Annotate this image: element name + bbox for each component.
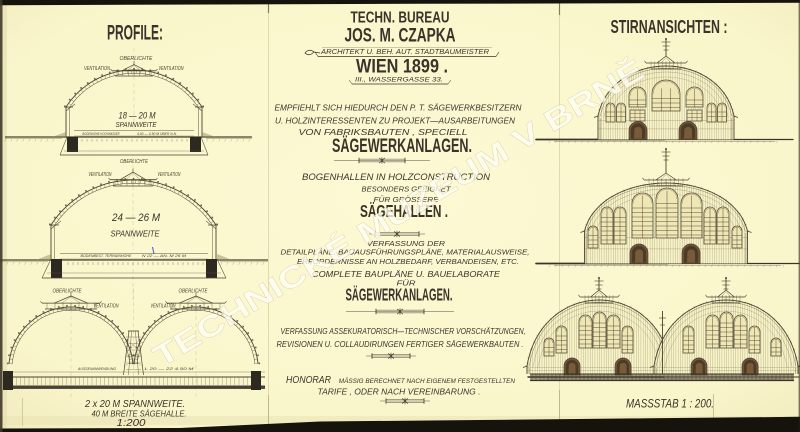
svg-text:VENTILATION: VENTILATION — [89, 172, 112, 178]
svg-text:SPANNWEITE: SPANNWEITE — [111, 229, 160, 239]
svg-text:VENTILATION: VENTILATION — [158, 172, 181, 178]
svg-text:WIEN 1899 .: WIEN 1899 . — [356, 57, 448, 78]
svg-text:VENTILATION: VENTILATION — [94, 304, 119, 310]
svg-text:VERFASSUNG ASSEKURATORISCH—T: VERFASSUNG ASSEKURATORISCH—TECHNISCHER V… — [281, 327, 526, 336]
svg-text:OBERLICHTE: OBERLICHTE — [120, 159, 149, 165]
svg-text:SPANNWEITE: SPANNWEITE — [116, 122, 157, 129]
svg-text:REVISIONEN U. COLLAUDIRUNGEN: REVISIONEN U. COLLAUDIRUNGEN FERTIGER SÄ… — [277, 340, 524, 349]
svg-text:PROFILE:: PROFILE: — [107, 22, 163, 45]
svg-text:MASSSTAB 1 : 200.: MASSSTAB 1 : 200. — [626, 397, 714, 411]
svg-text:18 — 20 M: 18 — 20 M — [119, 111, 156, 122]
svg-text:ARCHITEKT U. BEH. AUT. STADT: ARCHITEKT U. BEH. AUT. STADTBAUMEISTER — [320, 49, 489, 56]
svg-text:SÄGEWERKANLAGEN.: SÄGEWERKANLAGEN. — [332, 136, 472, 157]
svg-text:OBERLICHTE: OBERLICHTE — [53, 289, 83, 295]
svg-text:N 22 — AN. M 26 M: N 22 — AN. M 26 M — [142, 253, 187, 258]
svg-text:III., WASSERGASSE 33.: III., WASSERGASSE 33. — [355, 77, 443, 84]
svg-text:VENTILATION: VENTILATION — [151, 304, 176, 310]
svg-text:JOS. M. CZAPKA: JOS. M. CZAPKA — [345, 25, 456, 47]
svg-text:BODENHÖHE HOCHWASSER: BODENHÖHE HOCHWASSER — [83, 131, 120, 136]
svg-text:1:200: 1:200 — [117, 418, 147, 429]
svg-text:U. HOLZINTERESSENTEN ZU P: U. HOLZINTERESSENTEN ZU PROJEKT—AUSARBEI… — [275, 116, 516, 126]
svg-text:OBERLICHTE: OBERLICHTE — [120, 56, 153, 62]
svg-text:OBERLICHTE: OBERLICHTE — [179, 289, 209, 295]
svg-text:VENTILATION: VENTILATION — [84, 66, 110, 72]
svg-text:STIRNANSICHTEN :: STIRNANSICHTEN : — [611, 17, 728, 37]
svg-text:TARIFE , ODER NACH VEREINBA: TARIFE , ODER NACH VEREINBARUNG . — [318, 387, 481, 397]
svg-text:EMPFIEHLT SICH HIEDURCH DE: EMPFIEHLT SICH HIEDURCH DEN P. T. SÄGEWE… — [275, 103, 523, 113]
svg-text:BODENBEST. TERRAINHÖHE: BODENBEST. TERRAINHÖHE — [81, 253, 132, 258]
svg-text:4.00 — 4.50 M ÜBER N.N.: 4.00 — 4.50 M ÜBER N.N. — [137, 131, 177, 136]
svg-text:VENTILATION: VENTILATION — [159, 66, 184, 72]
svg-text:24 — 26 M: 24 — 26 M — [111, 212, 161, 224]
svg-text:SÄGEWERKANLAGEN.: SÄGEWERKANLAGEN. — [346, 285, 453, 305]
svg-text:AUSSENANWENDUNG: AUSSENANWENDUNG — [77, 366, 116, 371]
svg-text:2 x 20 M SPANNWEITE.: 2 x 20 M SPANNWEITE. — [84, 399, 185, 410]
